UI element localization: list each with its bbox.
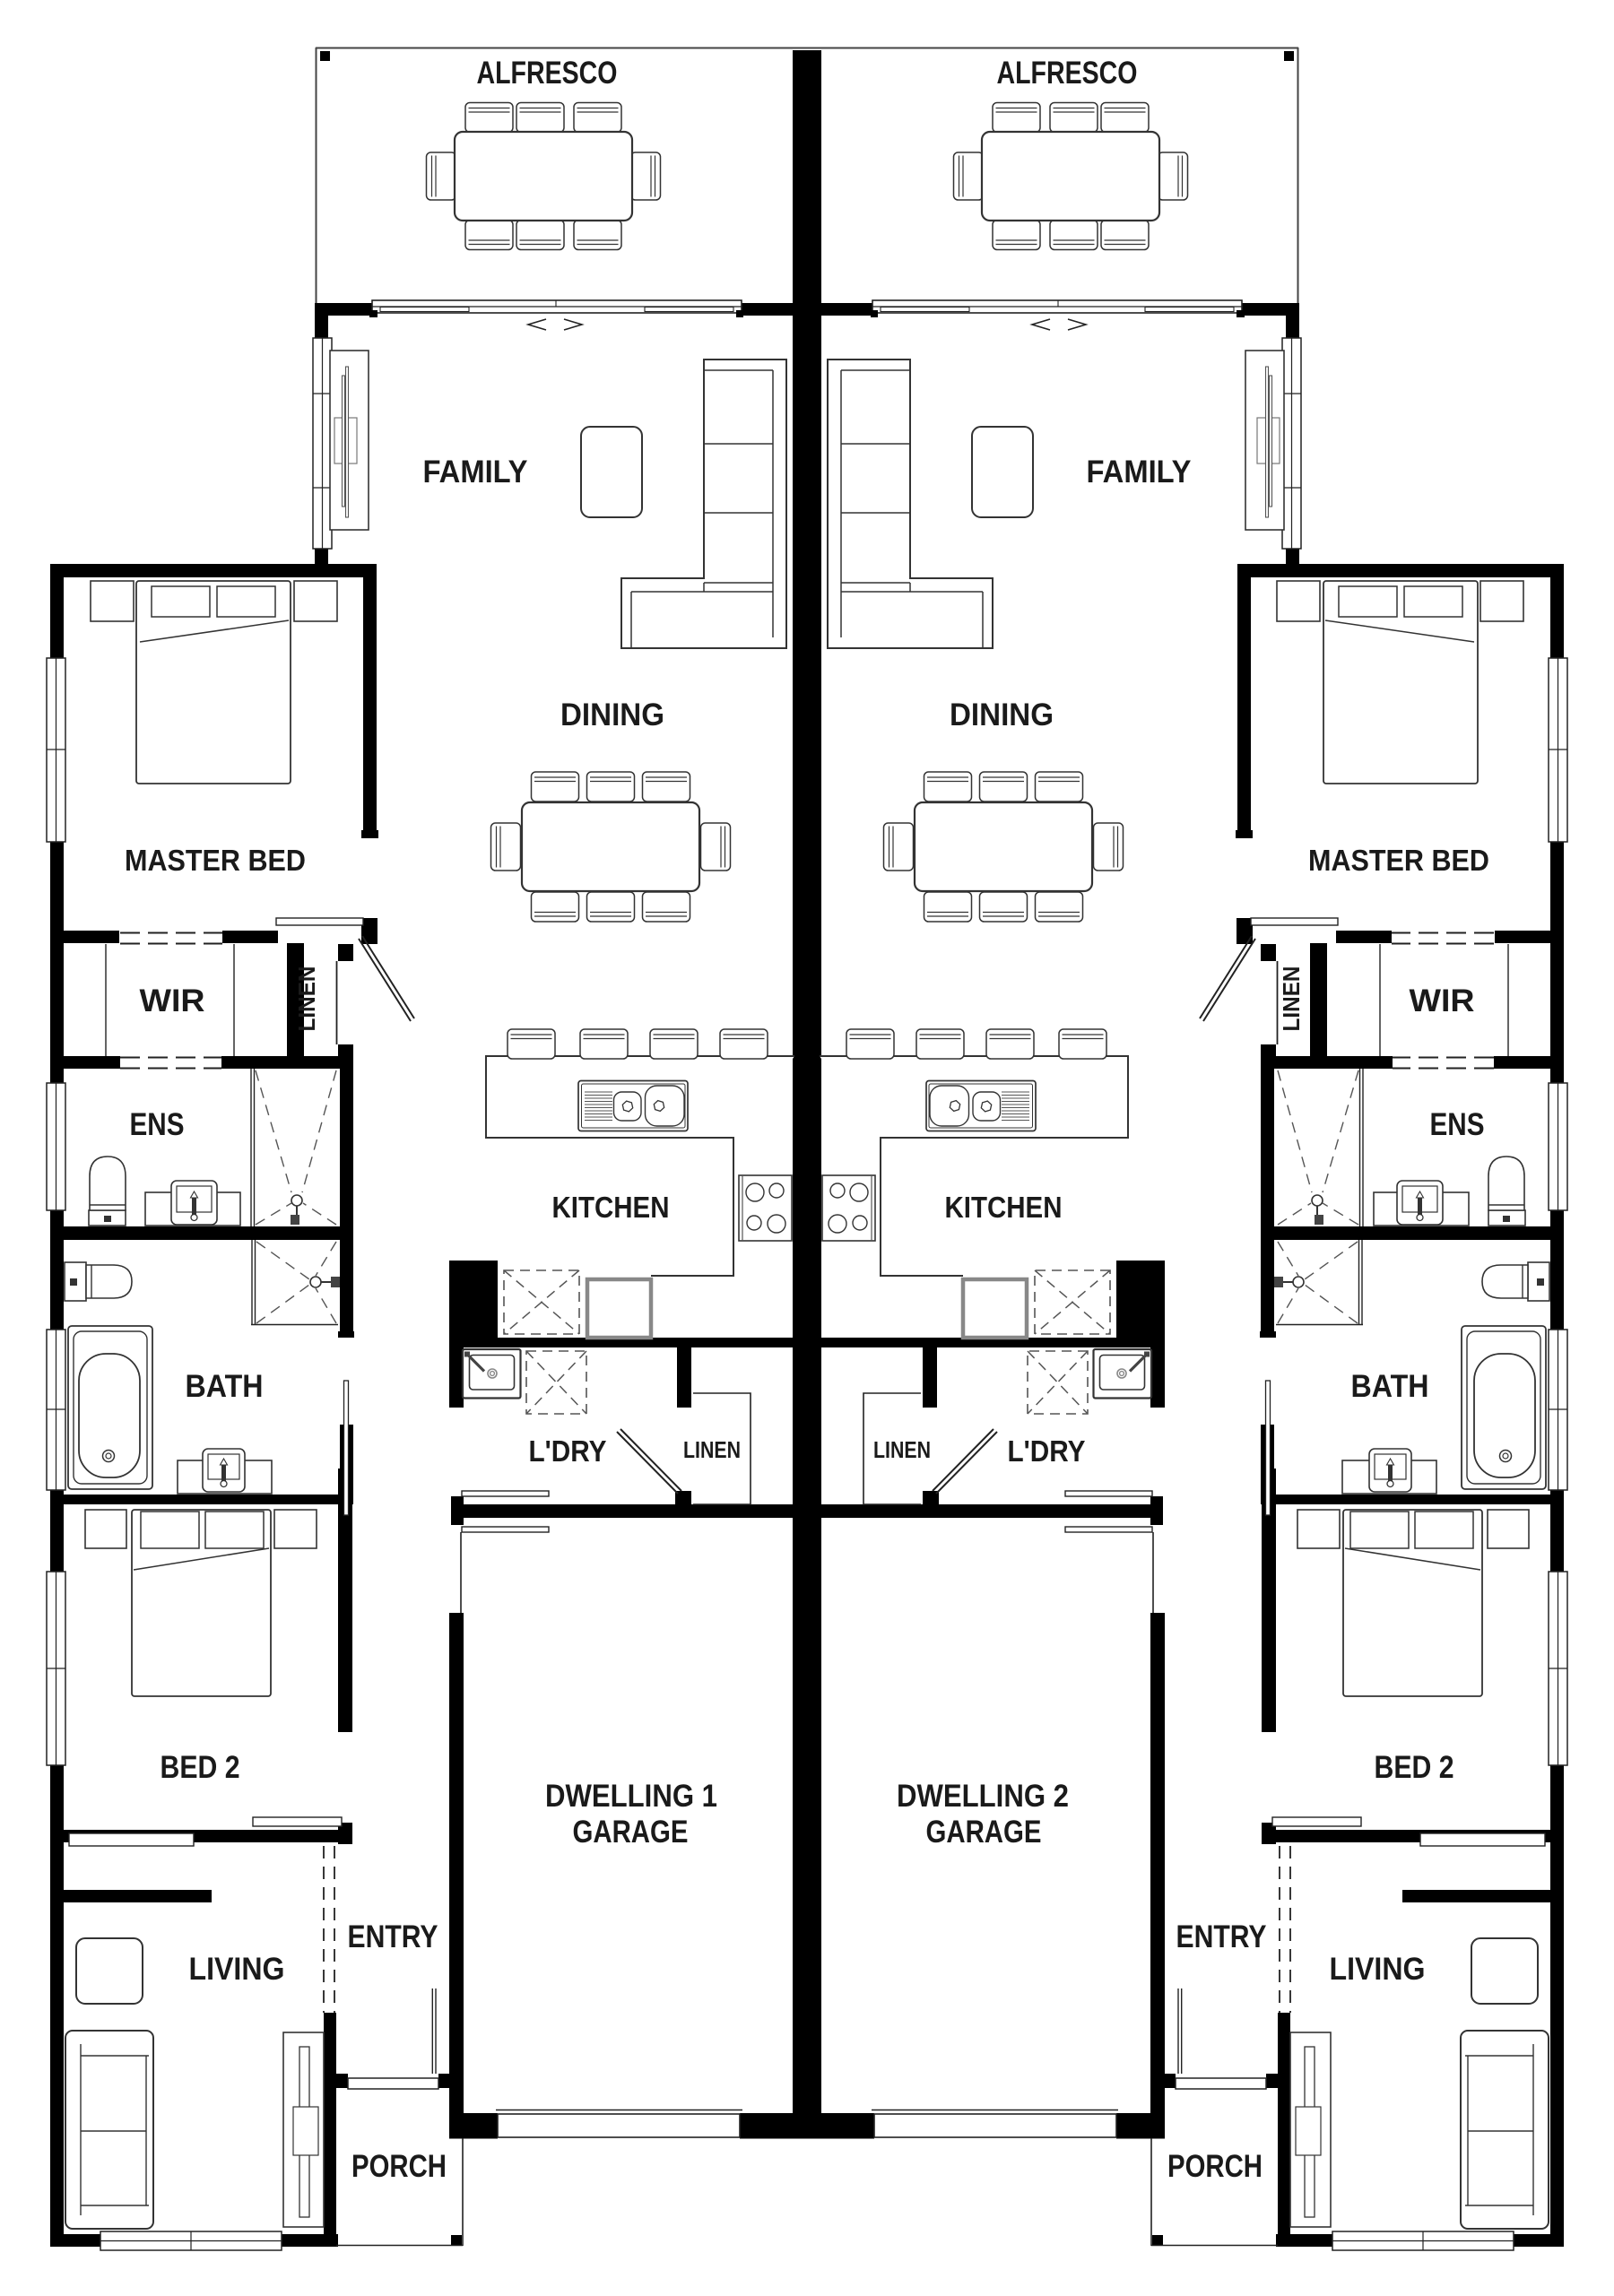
svg-text:ENS: ENS [130, 1107, 185, 1142]
svg-text:ENTRY: ENTRY [1176, 1919, 1267, 1954]
svg-text:LINEN: LINEN [293, 966, 320, 1032]
svg-text:L'DRY: L'DRY [1008, 1434, 1086, 1468]
svg-text:PORCH: PORCH [351, 2149, 447, 2184]
svg-text:DWELLING 1: DWELLING 1 [545, 1779, 717, 1814]
svg-text:BATH: BATH [1351, 1369, 1429, 1404]
svg-text:LINEN: LINEN [1278, 966, 1305, 1032]
svg-text:LINEN: LINEN [683, 1436, 741, 1463]
svg-text:DWELLING 2: DWELLING 2 [897, 1779, 1069, 1814]
svg-text:KITCHEN: KITCHEN [945, 1191, 1063, 1224]
svg-text:LIVING: LIVING [189, 1952, 285, 1987]
svg-text:ENTRY: ENTRY [348, 1919, 438, 1954]
svg-text:ALFRESCO: ALFRESCO [997, 56, 1138, 91]
svg-text:LIVING: LIVING [1330, 1952, 1426, 1987]
svg-text:DINING: DINING [950, 697, 1054, 732]
svg-text:L'DRY: L'DRY [529, 1434, 607, 1468]
svg-text:KITCHEN: KITCHEN [552, 1191, 670, 1224]
svg-text:WIR: WIR [1410, 983, 1475, 1018]
svg-text:ENS: ENS [1430, 1107, 1485, 1142]
svg-text:MASTER BED: MASTER BED [1308, 844, 1489, 877]
svg-text:MASTER BED: MASTER BED [125, 844, 306, 877]
svg-text:DINING: DINING [560, 697, 664, 732]
svg-text:BED 2: BED 2 [1375, 1750, 1454, 1785]
svg-text:FAMILY: FAMILY [423, 455, 528, 490]
svg-text:FAMILY: FAMILY [1087, 455, 1192, 490]
svg-text:GARAGE: GARAGE [573, 1815, 689, 1850]
svg-text:ALFRESCO: ALFRESCO [477, 56, 618, 91]
svg-text:PORCH: PORCH [1167, 2149, 1263, 2184]
svg-text:WIR: WIR [140, 983, 205, 1018]
svg-text:LINEN: LINEN [873, 1436, 931, 1463]
svg-text:BATH: BATH [186, 1369, 264, 1404]
svg-text:GARAGE: GARAGE [926, 1815, 1042, 1850]
svg-text:BED 2: BED 2 [161, 1750, 240, 1785]
